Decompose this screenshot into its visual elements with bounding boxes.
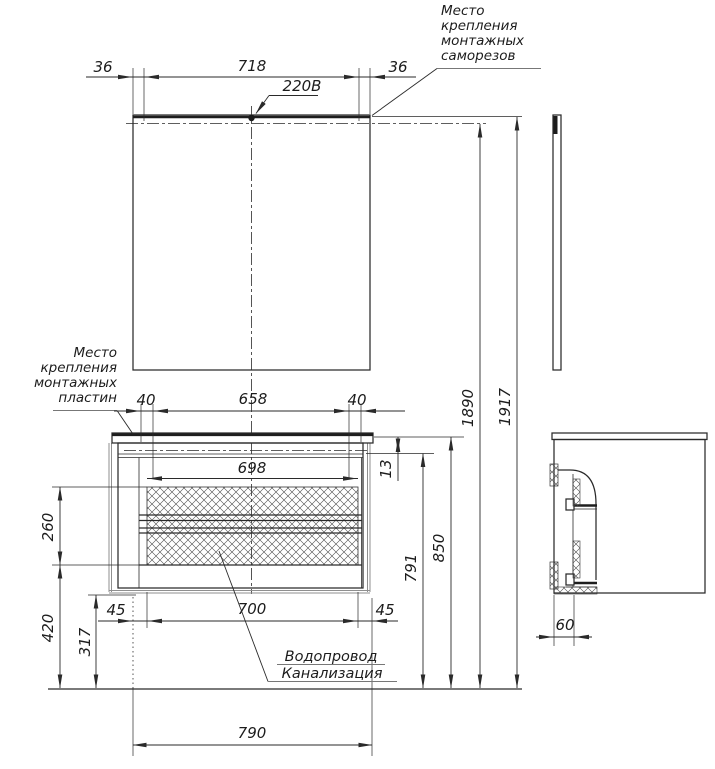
power-outlet-point (248, 115, 254, 121)
power-label: 220В (283, 77, 322, 95)
dim-drawers-height: 260 (39, 513, 57, 542)
note-line: монтажных (441, 33, 525, 49)
dim-top-chain: 36 718 36 (86, 57, 416, 121)
mirror-side-view (553, 115, 561, 370)
cabinet-front-view (109, 433, 373, 593)
note-sewerage: Канализация (282, 666, 383, 682)
dim-body-width: 700 (238, 600, 267, 618)
drawer-fronts-hatch (147, 487, 358, 565)
note-line: крепления (441, 18, 518, 34)
note-line: Место (441, 3, 485, 19)
countertop-side (552, 433, 707, 440)
dim-trap-height: 317 (76, 627, 94, 656)
dim-plate-right-offset: 40 (347, 391, 366, 409)
dim-overall-height: 1917 (496, 387, 514, 426)
note-water-supply: Водопровод (285, 649, 378, 665)
dim-side-offset-label: 60 (555, 616, 574, 634)
mount-plate-upper-hatch (550, 464, 558, 486)
dim-inner-width: 698 (147, 459, 358, 479)
dim-overall-width: 790 (133, 689, 372, 756)
cabinet-side-view (550, 433, 707, 594)
mirror-mount-bracket (554, 116, 558, 134)
dim-counter-gap: 13 (377, 459, 395, 478)
dim-mirror-mount-height: 1890 (459, 389, 477, 427)
dim-overall-width-label: 790 (238, 724, 267, 742)
note-mounting-plates: Место крепления монтажных пластин (34, 345, 135, 437)
dim-plate-span: 658 (239, 390, 268, 408)
dim-inner-width-label: 698 (238, 459, 267, 477)
note-line: монтажных (34, 375, 118, 391)
mount-plate-lower-hatch (550, 562, 558, 589)
dim-side-offset: 60 (536, 595, 592, 646)
dim-bottom-right-offset: 45 (375, 601, 394, 619)
inner-hatch-lower (573, 541, 580, 578)
bottom-hatch-strip (554, 587, 597, 594)
dim-plate-left-offset: 40 (136, 391, 155, 409)
dim-bottom-left-offset: 45 (106, 601, 125, 619)
note-line: крепления (40, 360, 117, 376)
dim-mirror-screw-span: 718 (238, 57, 267, 75)
dim-mirror-right-offset: 36 (388, 58, 407, 76)
power-callout: 220В (256, 77, 321, 114)
note-line: пластин (58, 390, 117, 406)
dim-legs-zone-height: 420 (39, 614, 57, 643)
inner-hatch-upper (573, 479, 580, 506)
dim-body-top-height: 791 (402, 554, 420, 583)
furniture-installation-drawing: 220В 36 718 36 Место крепления монтажных… (0, 0, 715, 769)
dim-mirror-left-offset: 36 (93, 58, 112, 76)
technical-drawing-page: 220В 36 718 36 Место крепления монтажных… (0, 0, 715, 769)
note-line: Место (74, 345, 118, 361)
note-line: саморезов (441, 48, 515, 64)
dim-counter-height: 850 (430, 534, 448, 563)
